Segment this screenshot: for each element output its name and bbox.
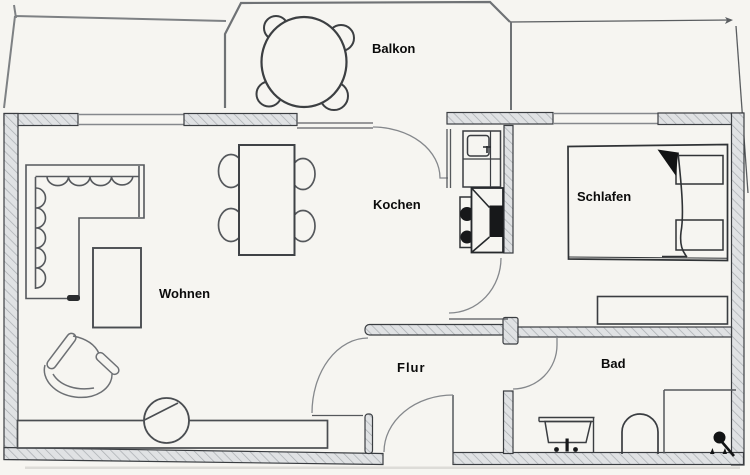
svg-text:Bad: Bad (601, 356, 626, 371)
svg-text:Wohnen: Wohnen (159, 286, 210, 301)
svg-text:Kochen: Kochen (373, 197, 421, 212)
svg-text:Flur: Flur (397, 360, 426, 375)
svg-text:Balkon: Balkon (372, 41, 415, 56)
svg-text:Schlafen: Schlafen (577, 189, 631, 204)
